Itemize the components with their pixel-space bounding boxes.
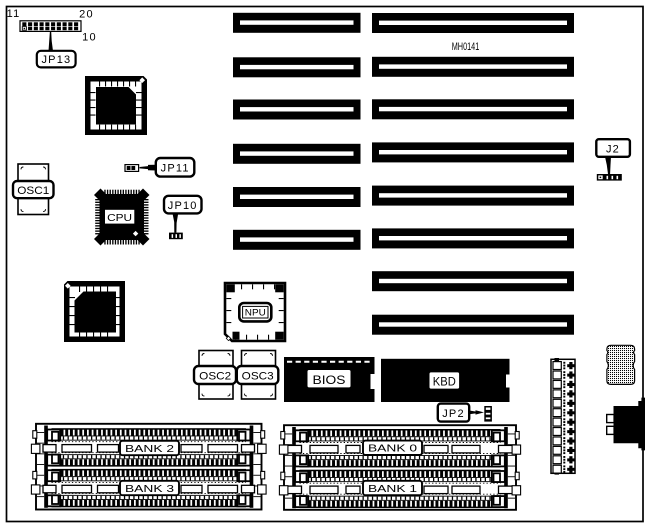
svg-text:JP11: JP11 <box>161 163 190 175</box>
svg-text:BANK 0: BANK 0 <box>368 443 417 455</box>
svg-text:20: 20 <box>79 9 94 21</box>
svg-text:BANK 1: BANK 1 <box>368 483 417 495</box>
svg-text:NPU: NPU <box>245 308 266 319</box>
svg-text:J2: J2 <box>606 144 620 156</box>
svg-text:BIOS: BIOS <box>313 373 346 387</box>
svg-text:JP2: JP2 <box>442 408 465 420</box>
svg-text:BANK 3: BANK 3 <box>125 483 174 495</box>
svg-text:MH0141: MH0141 <box>452 41 480 53</box>
svg-text:10: 10 <box>82 32 97 44</box>
svg-text:JP10: JP10 <box>168 200 198 212</box>
svg-text:OSC1: OSC1 <box>17 185 49 197</box>
svg-text:CPU: CPU <box>107 212 132 224</box>
svg-text:KBD: KBD <box>433 374 456 388</box>
svg-text:BANK 2: BANK 2 <box>125 443 174 455</box>
svg-text:OSC3: OSC3 <box>242 370 274 382</box>
svg-text:JP13: JP13 <box>41 54 71 66</box>
svg-text:11: 11 <box>7 8 21 20</box>
svg-text:OSC2: OSC2 <box>199 370 231 382</box>
